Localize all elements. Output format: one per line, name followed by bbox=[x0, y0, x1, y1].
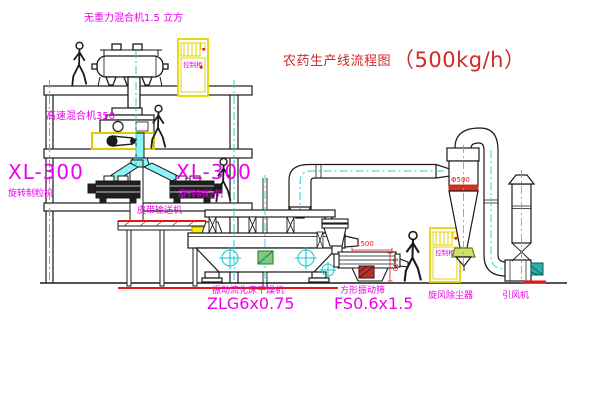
dim-screen-length: 1500 bbox=[356, 241, 374, 248]
gravity-free-mixer-drawing bbox=[92, 44, 168, 108]
title-text: 农药生产线流程图 bbox=[283, 50, 391, 69]
title-capacity: （500kg/h） bbox=[393, 44, 525, 74]
label-granulator-right-model: XL-300 bbox=[176, 162, 252, 182]
person-figure bbox=[72, 42, 86, 84]
person-figure bbox=[405, 232, 421, 281]
label-granulator-right-name: 旋转制粒机 bbox=[178, 191, 223, 200]
label-granulator-left-name: 旋转制粒机 bbox=[8, 190, 53, 199]
cabinet-panel-text: 控制柜 bbox=[180, 62, 206, 69]
label-gravity-mixer: 无重力混合机1.5 立方 bbox=[84, 14, 183, 24]
fan-drawing bbox=[505, 260, 546, 284]
label-belt-conveyor: 皮带输送机 bbox=[137, 207, 182, 216]
label-granulator-left-model: XL-300 bbox=[8, 162, 84, 182]
label-dryer-model: ZLG6x0.75 bbox=[207, 296, 295, 312]
dim-screen-height: 540 bbox=[391, 258, 398, 271]
label-fan: 引风机 bbox=[502, 292, 529, 301]
diagram-title: 农药生产线流程图 （500kg/h） bbox=[283, 44, 525, 74]
label-speed-mixer: 高速混合机350 bbox=[46, 112, 115, 122]
cad-flow-diagram: 农药生产线流程图 （500kg/h） 无重力混合机1.5 立方 高速混合机350… bbox=[0, 0, 600, 403]
cabinet-panel-text: 控制柜 bbox=[432, 250, 458, 257]
label-screen-model: FS0.6x1.5 bbox=[334, 296, 413, 312]
label-cyclone: 旋风除尘器 bbox=[428, 292, 473, 301]
dim-cyclone-diameter: Φ500 bbox=[451, 177, 470, 184]
